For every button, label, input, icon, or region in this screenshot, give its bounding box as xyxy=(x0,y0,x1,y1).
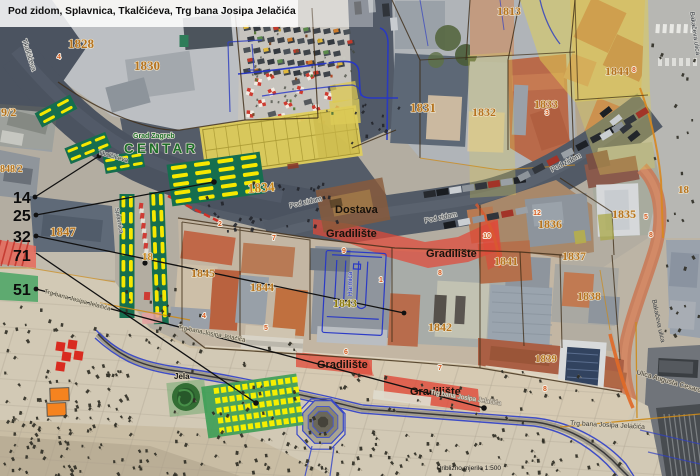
svg-text:9: 9 xyxy=(342,248,346,255)
svg-text:Harmica: Harmica xyxy=(347,271,354,296)
svg-text:5: 5 xyxy=(264,325,268,332)
svg-text:Gradilište: Gradilište xyxy=(326,228,377,240)
svg-text:1828: 1828 xyxy=(68,36,95,51)
svg-text:2: 2 xyxy=(218,221,222,228)
svg-text:1841: 1841 xyxy=(494,254,518,268)
svg-text:1836: 1836 xyxy=(538,217,562,231)
svg-text:1831: 1831 xyxy=(410,100,436,115)
svg-text:Pod zidom, Splavnica, Tkalčiće: Pod zidom, Splavnica, Tkalčićeva, Trg ba… xyxy=(8,6,296,17)
svg-text:1837: 1837 xyxy=(562,249,586,263)
svg-text:1833: 1833 xyxy=(534,97,558,111)
svg-text:8: 8 xyxy=(632,67,636,74)
svg-text:Približno mjerilo 1:500: Približno mjerilo 1:500 xyxy=(437,465,501,472)
svg-text:1835: 1835 xyxy=(612,207,636,221)
svg-text:5: 5 xyxy=(644,214,648,221)
svg-text:1847: 1847 xyxy=(50,224,77,239)
svg-text:8: 8 xyxy=(649,232,653,239)
svg-text:18: 18 xyxy=(142,251,154,263)
svg-text:7: 7 xyxy=(272,235,276,242)
svg-text:32: 32 xyxy=(13,229,31,246)
svg-text:14: 14 xyxy=(13,190,31,207)
svg-text:9/2: 9/2 xyxy=(1,105,16,119)
svg-text:51: 51 xyxy=(13,282,31,299)
svg-text:1: 1 xyxy=(379,277,383,284)
svg-text:Gradilište: Gradilište xyxy=(317,359,368,371)
svg-text:8: 8 xyxy=(438,270,442,277)
svg-text:3: 3 xyxy=(545,110,549,117)
svg-text:1843: 1843 xyxy=(333,296,357,310)
svg-text:Dostava: Dostava xyxy=(335,204,379,216)
svg-text:Jela: Jela xyxy=(174,372,190,381)
svg-text:18: 18 xyxy=(678,184,690,196)
svg-text:25: 25 xyxy=(13,208,31,225)
svg-text:1832: 1832 xyxy=(472,105,496,119)
svg-text:8: 8 xyxy=(543,386,547,393)
svg-text:1844: 1844 xyxy=(250,280,274,294)
svg-text:1839: 1839 xyxy=(535,353,558,365)
svg-text:4: 4 xyxy=(57,54,61,61)
svg-text:4: 4 xyxy=(202,313,206,320)
svg-text:1830: 1830 xyxy=(134,58,160,73)
svg-text:Gradilište: Gradilište xyxy=(426,248,477,260)
svg-text:Grad Zagreb: Grad Zagreb xyxy=(133,133,175,140)
svg-text:10: 10 xyxy=(483,233,491,240)
svg-text:1813: 1813 xyxy=(497,4,521,18)
svg-text:848/2: 848/2 xyxy=(0,164,23,175)
svg-text:71: 71 xyxy=(13,248,31,265)
svg-text:6: 6 xyxy=(344,349,348,356)
svg-text:CENTAR: CENTAR xyxy=(124,141,198,156)
svg-text:1844: 1844 xyxy=(605,64,629,78)
svg-text:1834: 1834 xyxy=(247,179,275,196)
svg-text:7: 7 xyxy=(438,365,442,372)
svg-text:1845: 1845 xyxy=(191,266,215,280)
svg-text:1842: 1842 xyxy=(428,320,452,334)
svg-text:12: 12 xyxy=(533,210,541,217)
svg-text:1838: 1838 xyxy=(577,289,601,303)
